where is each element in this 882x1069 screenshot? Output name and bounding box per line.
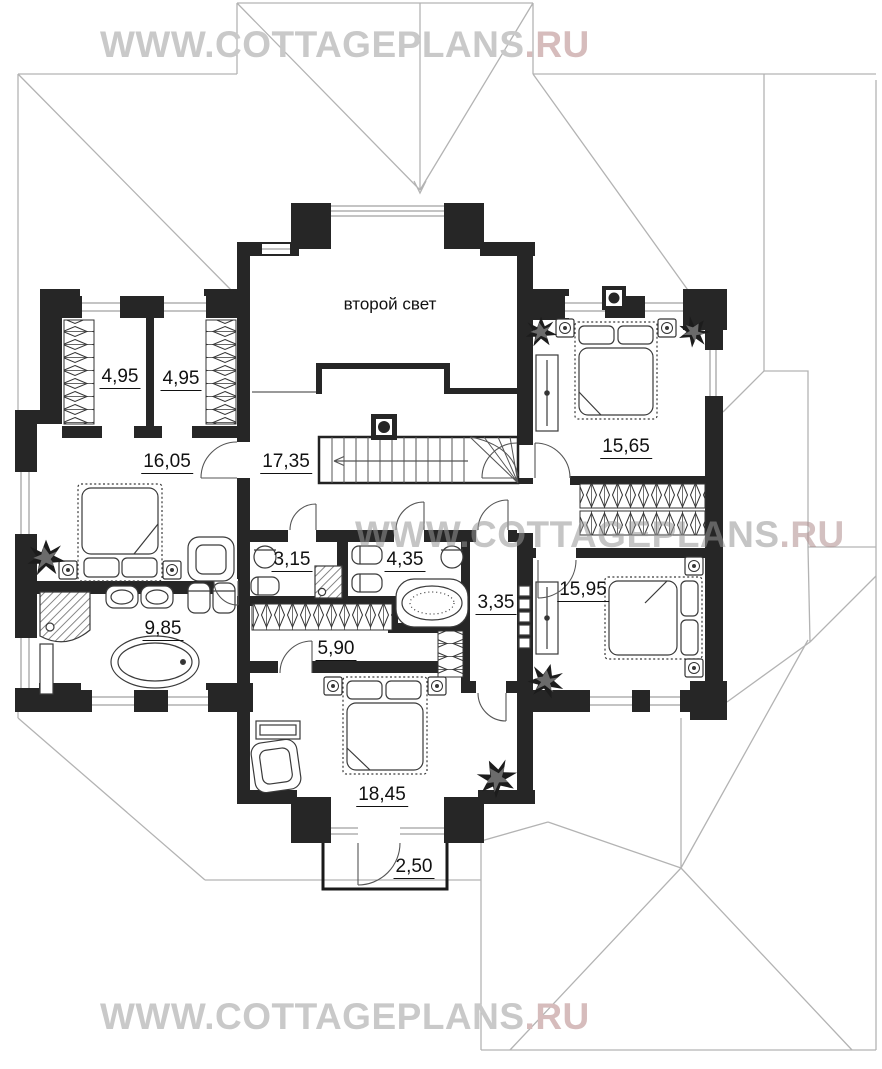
chimney-hall <box>371 414 397 440</box>
armchair-left-bedroom <box>188 537 234 581</box>
room-area-label-wardrobe: 5,90 <box>316 639 357 661</box>
room-area-label-bedroom-top-right: 15,65 <box>600 437 652 459</box>
bench <box>40 644 53 694</box>
freestanding-bathtub <box>111 636 199 688</box>
room-area-label-hall: 17,35 <box>260 452 312 474</box>
double-bed-top-right <box>575 322 657 419</box>
watermark-ru: .RU <box>525 24 590 65</box>
room-area-label-closet-a: 4,95 <box>100 367 141 389</box>
double-bed-bottom <box>343 677 427 774</box>
room-area-label-balcony: 2,50 <box>394 857 435 879</box>
room-area-label-bedroom-right: 15,95 <box>557 580 609 602</box>
toilet-small-wc <box>251 577 279 595</box>
watermark-middle: WWW.COTTAGEPLANS.RU <box>355 516 845 553</box>
watermark-top: WWW.COTTAGEPLANS.RU <box>100 26 590 63</box>
shower-small-wc <box>315 566 342 598</box>
double-bed-left <box>78 484 162 581</box>
staircase <box>319 437 518 483</box>
jacuzzi-bathtub <box>396 579 468 627</box>
room-area-label-bathroom-master: 9,85 <box>143 619 184 641</box>
room-area-label-bedroom-left: 16,05 <box>141 452 193 474</box>
second-light-label: второй свет <box>344 296 437 313</box>
armchair-bottom-bedroom <box>250 738 303 794</box>
watermark-text: WWW.COTTAGEPLANS <box>100 996 525 1037</box>
chimney-right-wing <box>602 286 626 310</box>
double-bed-right <box>605 577 702 659</box>
table-bottom-bedroom <box>256 721 300 739</box>
floor-plan-page: { "watermarks": { "top": {"text": "WWW.C… <box>0 0 882 1069</box>
watermark-text: WWW.COTTAGEPLANS <box>100 24 525 65</box>
dresser-right <box>536 582 558 654</box>
watermark-ru: .RU <box>525 996 590 1037</box>
watermark-ru: .RU <box>780 514 845 555</box>
watermark-text: WWW.COTTAGEPLANS <box>355 514 780 555</box>
room-area-label-bedroom-bottom: 18,45 <box>356 785 408 807</box>
corner-shower <box>40 592 90 642</box>
dresser-top-right <box>536 355 558 431</box>
room-area-label-closet-b: 4,95 <box>161 369 202 391</box>
watermark-bottom: WWW.COTTAGEPLANS.RU <box>100 998 590 1035</box>
room-area-label-hallway: 3,35 <box>476 593 517 615</box>
room-area-label-wc-small: 3,15 <box>272 550 313 572</box>
radiator-marks <box>519 586 530 648</box>
